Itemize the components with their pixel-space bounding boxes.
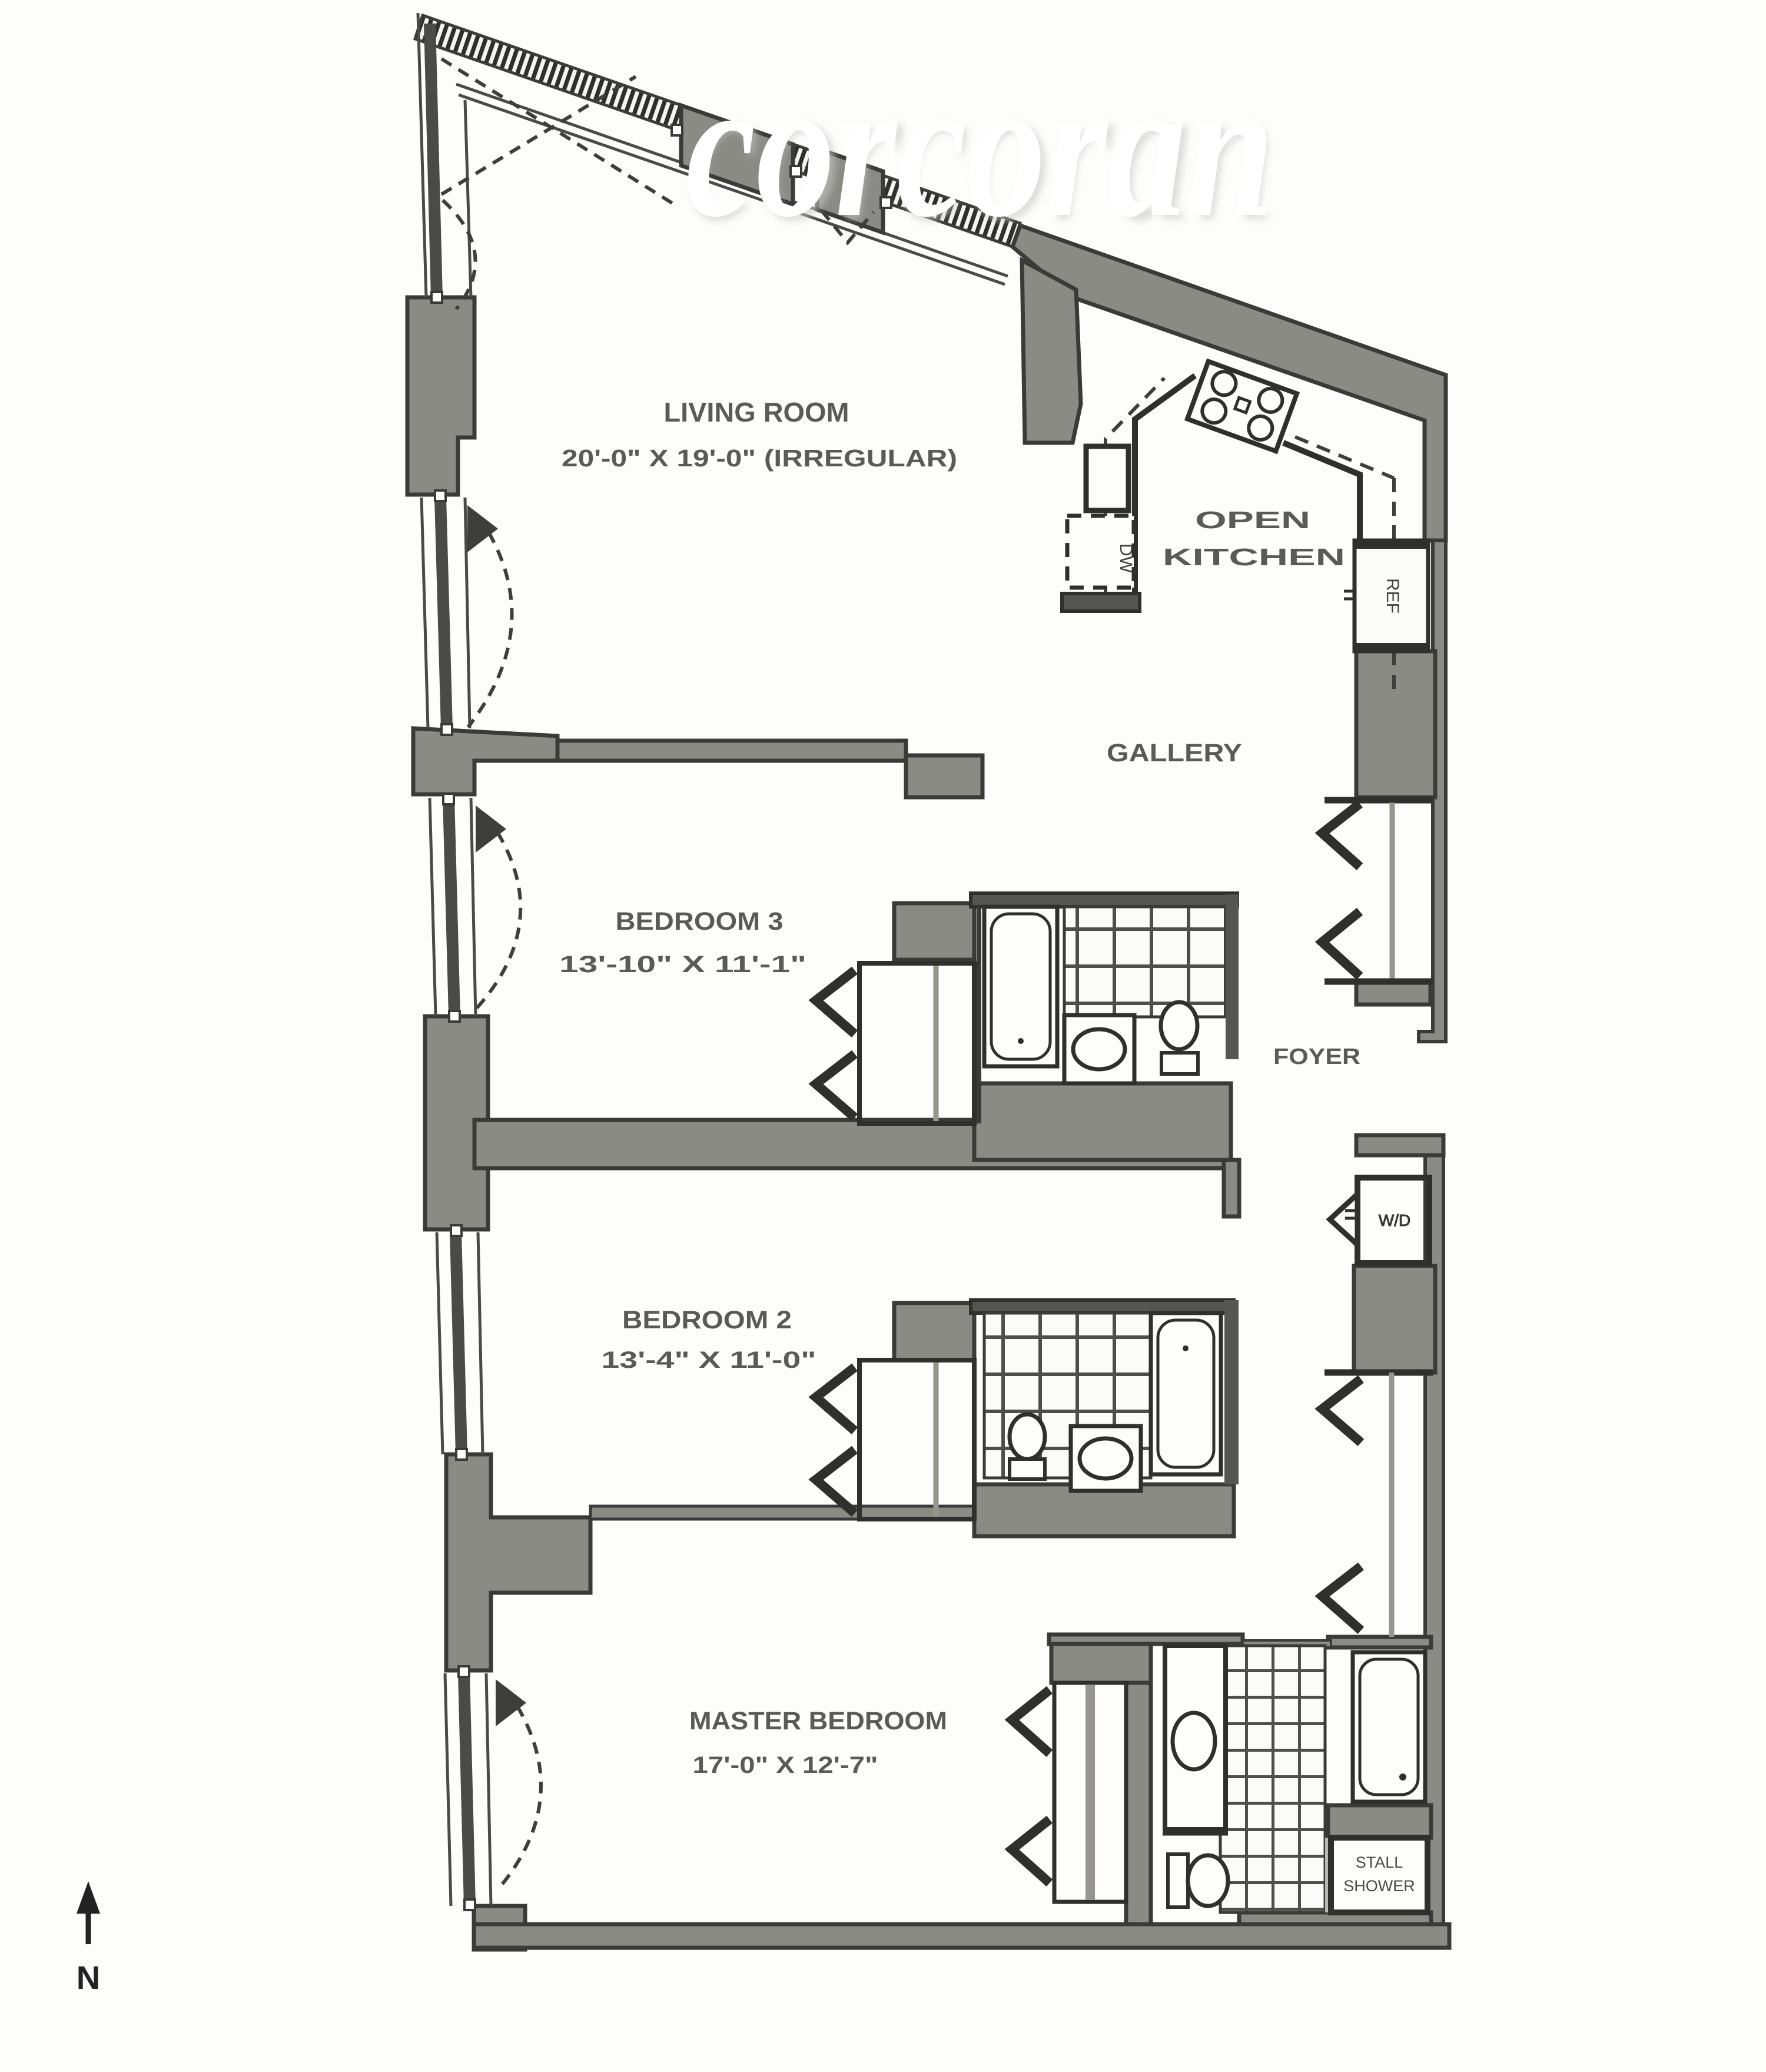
svg-text:STALL: STALL bbox=[1356, 1854, 1403, 1871]
svg-text:N: N bbox=[77, 1959, 100, 1996]
svg-text:MASTER BEDROOM: MASTER BEDROOM bbox=[689, 1707, 947, 1735]
svg-text:GALLERY: GALLERY bbox=[1107, 739, 1242, 767]
svg-text:BEDROOM 2: BEDROOM 2 bbox=[622, 1306, 792, 1334]
svg-text:LIVING ROOM: LIVING ROOM bbox=[664, 397, 849, 427]
svg-text:17'-0" X 12'-7": 17'-0" X 12'-7" bbox=[693, 1752, 878, 1778]
svg-text:13'-4" X 11'-0": 13'-4" X 11'-0" bbox=[602, 1347, 816, 1373]
svg-text:20'-0" X 19'-0" (IRREGULAR): 20'-0" X 19'-0" (IRREGULAR) bbox=[562, 445, 957, 472]
svg-text:SHOWER: SHOWER bbox=[1343, 1877, 1415, 1895]
svg-text:13'-10" X 11'-1": 13'-10" X 11'-1" bbox=[559, 952, 806, 977]
svg-text:FOYER: FOYER bbox=[1273, 1045, 1360, 1069]
svg-text:W/D: W/D bbox=[1379, 1211, 1410, 1229]
svg-text:corcoran: corcoran bbox=[686, 37, 1274, 258]
svg-text:BEDROOM 3: BEDROOM 3 bbox=[616, 907, 784, 936]
svg-text:KITCHEN: KITCHEN bbox=[1163, 543, 1345, 571]
svg-text:REF: REF bbox=[1383, 578, 1402, 614]
svg-text:DW: DW bbox=[1116, 543, 1136, 573]
svg-text:OPEN: OPEN bbox=[1195, 506, 1310, 533]
